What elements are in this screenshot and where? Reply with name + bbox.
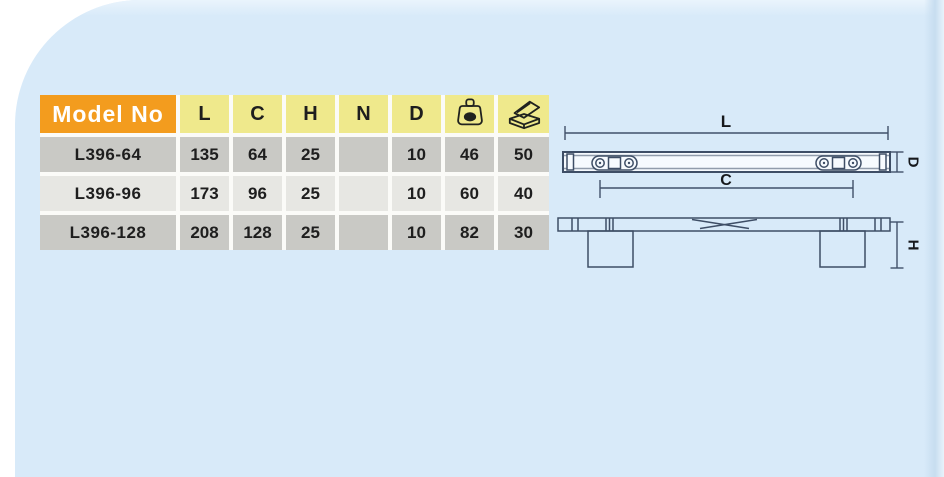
cell-L: 173 [180,176,229,211]
dim-label-D: D [905,157,922,168]
header-col-D: D [392,95,441,133]
cell-D: 10 [392,137,441,172]
dim-C: C [600,172,853,198]
dim-L: L [565,112,888,140]
cell-N [339,137,388,172]
cell-N [339,215,388,250]
break-symbol [692,220,757,229]
mount-plate-left [592,156,637,170]
end-cap-left [567,154,574,170]
header-col-box [498,95,549,133]
dim-label-C: C [720,172,732,189]
cell-H: 25 [286,215,335,250]
spec-table: Model No L C H N D L396-64 135 64 25 10 … [40,95,549,250]
header-col-C: C [233,95,282,133]
header-col-N: N [339,95,388,133]
dim-label-L: L [721,112,731,131]
table-row-model: L396-96 [40,176,176,211]
cell-D: 10 [392,176,441,211]
table-row-model: L396-128 [40,215,176,250]
cell-C: 64 [233,137,282,172]
cell-D: 10 [392,215,441,250]
cell-L: 135 [180,137,229,172]
cell-C: 128 [233,215,282,250]
cell-weight: 60 [445,176,494,211]
cell-weight: 82 [445,215,494,250]
header-model-no: Model No [40,95,176,133]
handle-top-view [563,152,890,172]
cell-box: 50 [498,137,549,172]
table-row-model: L396-64 [40,137,176,172]
cell-box: 40 [498,176,549,211]
dim-H: H [891,222,922,268]
weight-icon [454,98,486,130]
header-col-L: L [180,95,229,133]
mount-plate-right [816,156,861,170]
technical-drawing: L D [553,105,935,277]
cell-weight: 46 [445,137,494,172]
cell-N [339,176,388,211]
cell-C: 96 [233,176,282,211]
dim-D: D [891,152,922,172]
end-cap-right [880,154,887,170]
packing-box-icon [506,98,542,130]
cell-L: 208 [180,215,229,250]
header-col-H: H [286,95,335,133]
dim-label-H: H [905,240,922,251]
leg-right [820,231,865,267]
cell-box: 30 [498,215,549,250]
leg-left [588,231,633,267]
cell-H: 25 [286,137,335,172]
handle-side-view [558,218,890,267]
cell-H: 25 [286,176,335,211]
header-col-weight [445,95,494,133]
